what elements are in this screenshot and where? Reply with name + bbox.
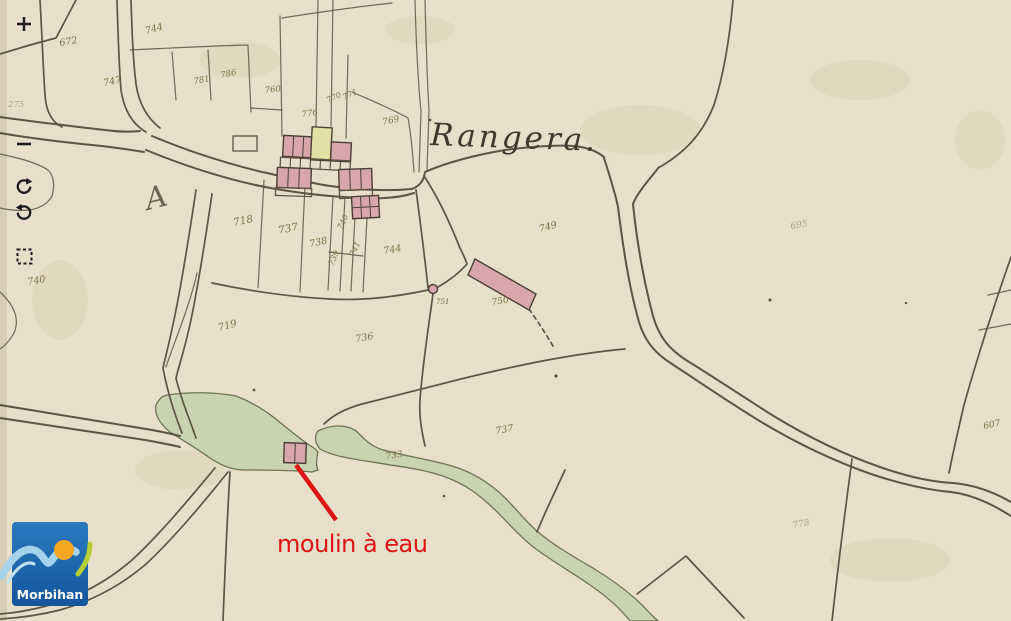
dashed-square-icon [16, 248, 33, 265]
rotate-clockwise-button[interactable] [13, 175, 35, 197]
place-label: Rangera. [429, 117, 599, 159]
yellow-building [310, 127, 332, 161]
zoom-in-button[interactable] [13, 13, 35, 35]
map-viewer: Rangera. A 67274474778178676027577677077… [0, 0, 1011, 621]
zoom-out-button[interactable] [13, 133, 35, 155]
minus-icon [15, 135, 33, 153]
rotate-clockwise-icon [15, 177, 33, 195]
logo-text: Morbihan [17, 587, 84, 602]
parcel-number: 751 [436, 298, 449, 306]
paper-texture [0, 0, 1011, 621]
cadastral-map-canvas[interactable]: Rangera. A 67274474778178676027577677077… [0, 0, 1011, 621]
rotate-counterclockwise-button[interactable] [13, 201, 35, 223]
sun-icon [54, 540, 74, 560]
annotation-label: moulin à eau [277, 530, 427, 558]
parcel-number: 275 [7, 100, 24, 110]
rotate-counterclockwise-icon [15, 203, 33, 221]
morbihan-logo[interactable]: Morbihan [0, 514, 100, 618]
zoom-extent-button[interactable] [13, 245, 35, 267]
logo-mark: Morbihan [2, 522, 90, 606]
parcel-number: 760 [264, 84, 282, 96]
well [429, 285, 438, 294]
plus-icon [15, 15, 33, 33]
